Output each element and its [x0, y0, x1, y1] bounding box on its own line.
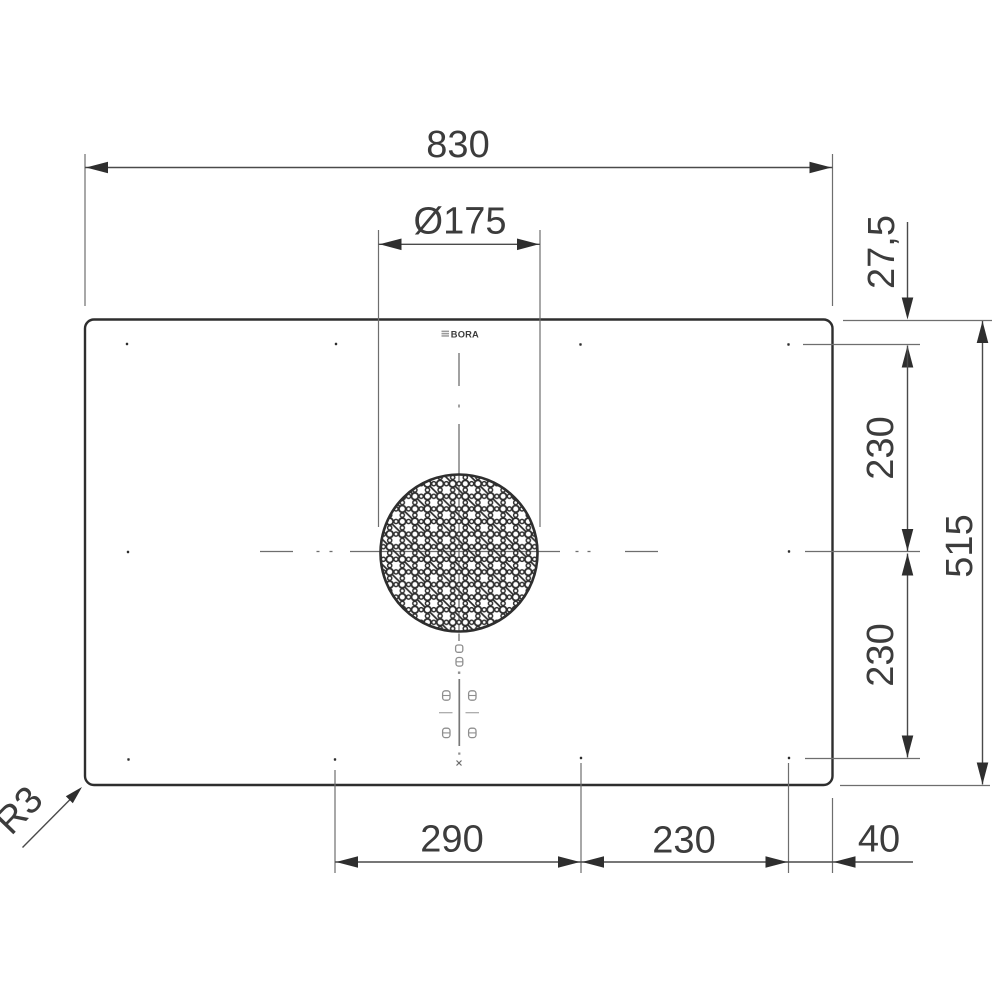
svg-text:27,5: 27,5	[861, 215, 903, 289]
svg-text:230: 230	[652, 820, 715, 862]
svg-text:830: 830	[426, 124, 489, 166]
svg-text:40: 40	[858, 819, 900, 861]
svg-text:Ø175: Ø175	[414, 201, 507, 243]
svg-text:BORA: BORA	[451, 330, 479, 340]
svg-text:230: 230	[860, 623, 902, 686]
svg-text:515: 515	[939, 514, 981, 577]
svg-text:230: 230	[860, 416, 902, 479]
svg-text:R3: R3	[0, 779, 51, 843]
svg-text:290: 290	[420, 819, 483, 861]
